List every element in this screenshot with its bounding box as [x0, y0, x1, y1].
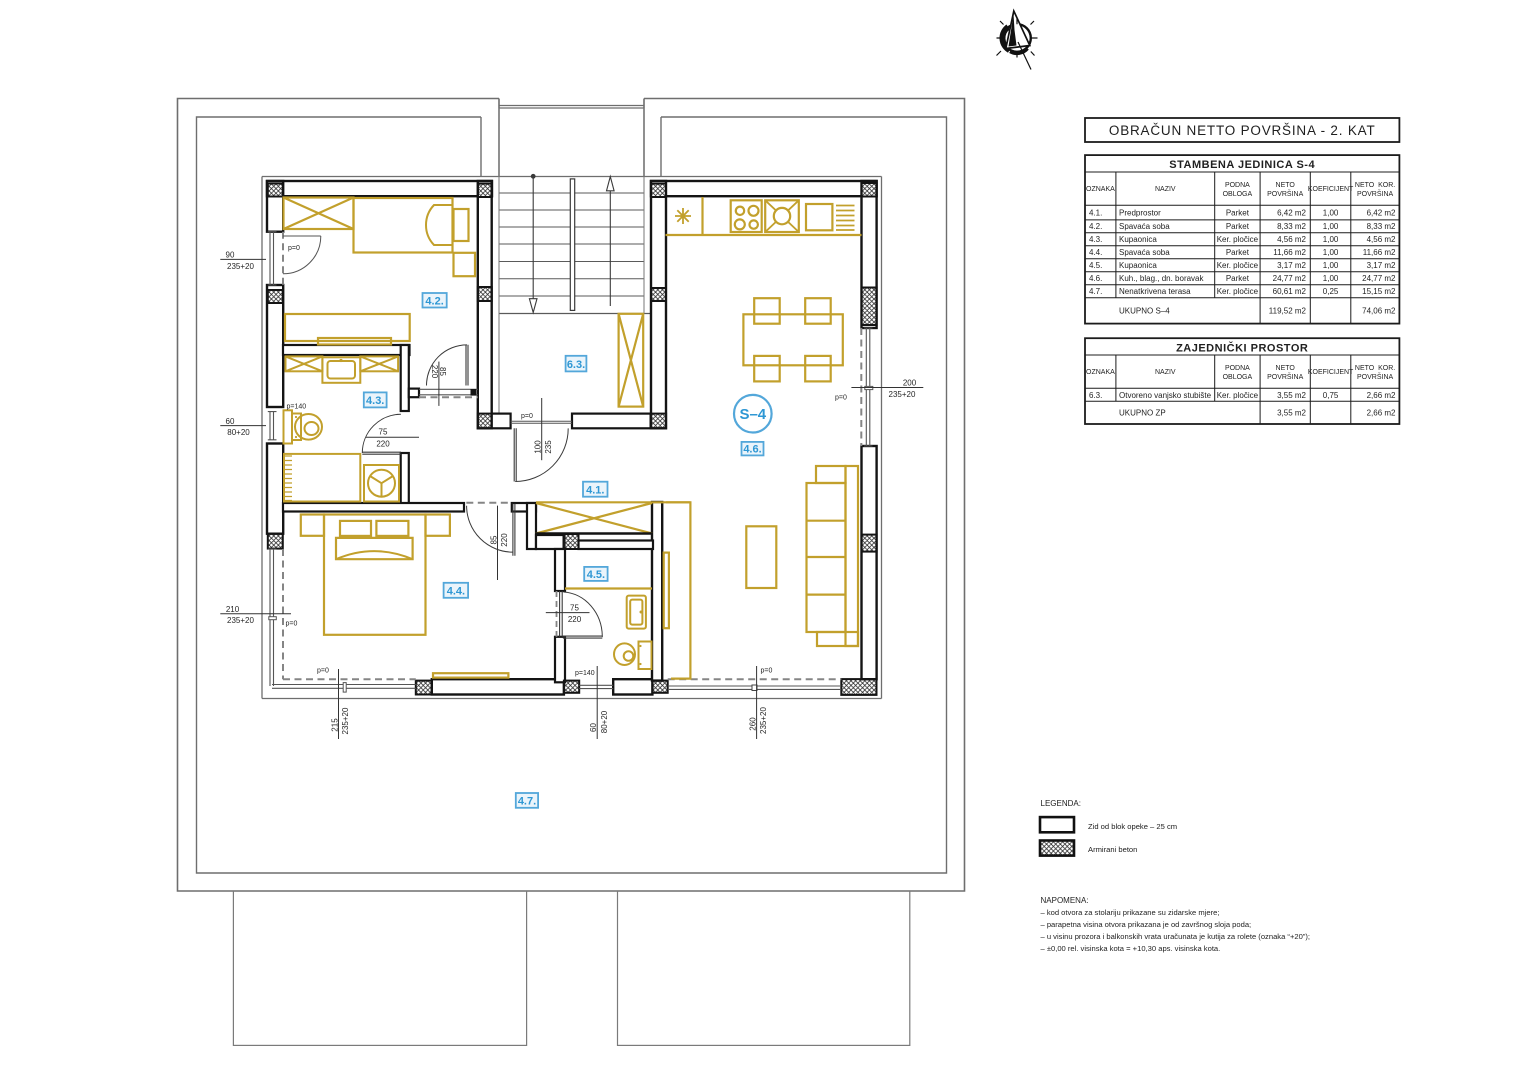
- svg-text:NAZIV: NAZIV: [1155, 369, 1176, 376]
- svg-text:OBLOGA: OBLOGA: [1223, 191, 1253, 198]
- svg-text:220: 220: [376, 439, 390, 448]
- svg-text:LEGENDA:: LEGENDA:: [1041, 799, 1081, 808]
- svg-text:p=0: p=0: [317, 667, 329, 674]
- svg-text:Ker. pločice: Ker. pločice: [1217, 391, 1259, 400]
- svg-text:p=140: p=140: [287, 404, 307, 411]
- svg-text:p=0: p=0: [286, 621, 298, 628]
- svg-text:NAPOMENA:: NAPOMENA:: [1041, 896, 1089, 905]
- svg-text:STAMBENA JEDINICA S-4: STAMBENA JEDINICA S-4: [1169, 159, 1315, 171]
- svg-text:Spavaća soba: Spavaća soba: [1119, 222, 1170, 231]
- svg-text:75: 75: [379, 427, 388, 436]
- svg-text:4.5.: 4.5.: [587, 569, 605, 581]
- svg-text:60,61 m2: 60,61 m2: [1273, 287, 1307, 296]
- svg-text:1,00: 1,00: [1323, 248, 1339, 257]
- svg-text:90: 90: [226, 251, 235, 260]
- svg-text:1,00: 1,00: [1323, 209, 1339, 218]
- svg-text:p=0: p=0: [288, 245, 300, 252]
- svg-text:p=0: p=0: [521, 413, 533, 420]
- svg-text:4.3.: 4.3.: [1089, 235, 1102, 244]
- svg-text:235+20: 235+20: [227, 262, 254, 271]
- svg-text:1,00: 1,00: [1323, 261, 1339, 270]
- svg-text:215: 215: [331, 718, 340, 732]
- svg-text:15,15 m2: 15,15 m2: [1362, 287, 1396, 296]
- svg-text:Armirani beton: Armirani beton: [1088, 845, 1137, 854]
- svg-text:260: 260: [749, 717, 758, 731]
- svg-text:8,33 m2: 8,33 m2: [1367, 222, 1396, 231]
- svg-text:1,00: 1,00: [1323, 274, 1339, 283]
- svg-text:85: 85: [490, 535, 499, 544]
- svg-text:Kuh., blag., dn. boravak: Kuh., blag., dn. boravak: [1119, 274, 1205, 283]
- svg-text:UKUPNO ZP: UKUPNO ZP: [1119, 409, 1166, 418]
- svg-text:Otvoreno vanjsko stubište: Otvoreno vanjsko stubište: [1119, 391, 1212, 400]
- svg-text:Spavaća soba: Spavaća soba: [1119, 248, 1170, 257]
- svg-text:60: 60: [589, 723, 598, 732]
- svg-text:6,42 m2: 6,42 m2: [1367, 209, 1396, 218]
- svg-text:3,17 m2: 3,17 m2: [1367, 261, 1396, 270]
- svg-text:NETO: NETO: [1276, 182, 1296, 189]
- svg-text:220: 220: [500, 533, 509, 547]
- svg-text:24,77 m2: 24,77 m2: [1273, 274, 1307, 283]
- svg-text:Ker. pločice: Ker. pločice: [1217, 235, 1259, 244]
- svg-text:4,56 m2: 4,56 m2: [1367, 235, 1396, 244]
- svg-text:OBRAČUN NETTO POVRŠINA - 2. KA: OBRAČUN NETTO POVRŠINA - 2. KAT: [1109, 123, 1376, 138]
- svg-text:235+20: 235+20: [759, 706, 768, 733]
- svg-text:– parapetna visina otvora prik: – parapetna visina otvora prikazana je o…: [1041, 920, 1252, 929]
- svg-text:4.2.: 4.2.: [425, 295, 443, 307]
- svg-text:KOEFICIJENT: KOEFICIJENT: [1308, 186, 1354, 193]
- svg-text:210: 210: [226, 605, 240, 614]
- svg-text:4,56 m2: 4,56 m2: [1277, 235, 1306, 244]
- svg-text:OZNAKA: OZNAKA: [1086, 186, 1115, 193]
- svg-text:6.3.: 6.3.: [1089, 391, 1102, 400]
- svg-text:4.2.: 4.2.: [1089, 222, 1102, 231]
- svg-text:3,55 m2: 3,55 m2: [1277, 391, 1306, 400]
- svg-text:Nenatkrivena terasa: Nenatkrivena terasa: [1119, 287, 1191, 296]
- svg-text:1,00: 1,00: [1323, 235, 1339, 244]
- svg-text:235+20: 235+20: [227, 616, 254, 625]
- svg-text:11,66 m2: 11,66 m2: [1273, 248, 1306, 257]
- svg-text:75: 75: [570, 604, 579, 613]
- svg-text:NETO: NETO: [1276, 365, 1296, 372]
- svg-text:– kod otvora za stolariju prik: – kod otvora za stolariju prikazane su z…: [1041, 908, 1220, 917]
- svg-text:4.7.: 4.7.: [518, 796, 536, 808]
- svg-text:Predprostor: Predprostor: [1119, 209, 1161, 218]
- svg-text:4.5.: 4.5.: [1089, 261, 1102, 270]
- svg-text:S–4: S–4: [739, 406, 766, 423]
- svg-text:4.6.: 4.6.: [1089, 274, 1102, 283]
- svg-text:Parket: Parket: [1226, 222, 1250, 231]
- svg-text:8,33 m2: 8,33 m2: [1277, 222, 1306, 231]
- svg-text:POVRŠINA: POVRŠINA: [1267, 189, 1304, 198]
- svg-text:0,75: 0,75: [1323, 391, 1339, 400]
- svg-text:OBLOGA: OBLOGA: [1223, 374, 1253, 381]
- svg-text:p=0: p=0: [761, 668, 773, 675]
- svg-text:NAZIV: NAZIV: [1155, 186, 1176, 193]
- svg-text:60: 60: [226, 417, 235, 426]
- svg-text:2,66 m2: 2,66 m2: [1367, 409, 1396, 418]
- svg-text:1,00: 1,00: [1323, 222, 1339, 231]
- svg-text:Parket: Parket: [1226, 248, 1250, 257]
- svg-text:3,55 m2: 3,55 m2: [1277, 409, 1306, 418]
- svg-text:0,25: 0,25: [1323, 287, 1339, 296]
- svg-text:100: 100: [534, 440, 543, 454]
- svg-text:KOEFICIJENT: KOEFICIJENT: [1308, 369, 1354, 376]
- svg-text:– ±0,00 rel. visinska kota = +: – ±0,00 rel. visinska kota = +10,30 aps.…: [1041, 944, 1221, 953]
- svg-text:p=140: p=140: [575, 670, 595, 677]
- svg-text:6,42 m2: 6,42 m2: [1277, 209, 1306, 218]
- svg-text:Ker. pločice: Ker. pločice: [1217, 287, 1259, 296]
- svg-text:POVRŠINA: POVRŠINA: [1357, 372, 1394, 381]
- svg-text:Parket: Parket: [1226, 274, 1250, 283]
- svg-text:4.3.: 4.3.: [366, 395, 384, 407]
- svg-text:UKUPNO S–4: UKUPNO S–4: [1119, 307, 1170, 316]
- svg-text:– u visinu prozora i balkonski: – u visinu prozora i balkonskih vrata ur…: [1041, 932, 1311, 941]
- svg-text:OZNAKA: OZNAKA: [1086, 369, 1115, 376]
- svg-text:80+20: 80+20: [227, 428, 250, 437]
- svg-text:NETO KOR.: NETO KOR.: [1355, 182, 1395, 189]
- svg-text:POVRŠINA: POVRŠINA: [1357, 189, 1394, 198]
- svg-text:2,66 m2: 2,66 m2: [1367, 391, 1396, 400]
- svg-text:ZAJEDNIČKI PROSTOR: ZAJEDNIČKI PROSTOR: [1176, 342, 1308, 355]
- svg-text:PODNA: PODNA: [1225, 182, 1250, 189]
- svg-text:24,77 m2: 24,77 m2: [1362, 274, 1396, 283]
- svg-text:4.1.: 4.1.: [586, 484, 604, 496]
- svg-text:220: 220: [568, 615, 582, 624]
- svg-text:Parket: Parket: [1226, 209, 1250, 218]
- svg-text:235+20: 235+20: [889, 390, 916, 399]
- svg-text:Kupaonica: Kupaonica: [1119, 235, 1157, 244]
- svg-text:74,06 m2: 74,06 m2: [1362, 307, 1396, 316]
- svg-text:4.4.: 4.4.: [1089, 248, 1102, 257]
- svg-text:POVRŠINA: POVRŠINA: [1267, 372, 1304, 381]
- svg-text:4.7.: 4.7.: [1089, 287, 1102, 296]
- svg-text:Zid od blok opeke – 25 cm: Zid od blok opeke – 25 cm: [1088, 822, 1177, 831]
- svg-text:4.1.: 4.1.: [1089, 209, 1102, 218]
- svg-text:NETO KOR.: NETO KOR.: [1355, 365, 1395, 372]
- svg-text:3,17 m2: 3,17 m2: [1277, 261, 1306, 270]
- svg-text:11,66 m2: 11,66 m2: [1363, 248, 1396, 257]
- svg-text:Kupaonica: Kupaonica: [1119, 261, 1157, 270]
- svg-text:119,52 m2: 119,52 m2: [1269, 307, 1307, 316]
- svg-text:80+20: 80+20: [600, 710, 609, 733]
- svg-text:220: 220: [430, 365, 439, 379]
- svg-text:p=0: p=0: [835, 394, 847, 401]
- svg-text:4.6.: 4.6.: [743, 444, 761, 456]
- svg-text:6.3.: 6.3.: [567, 359, 585, 371]
- svg-text:235+20: 235+20: [341, 707, 350, 734]
- svg-text:Ker. pločice: Ker. pločice: [1217, 261, 1259, 270]
- svg-text:PODNA: PODNA: [1225, 365, 1250, 372]
- svg-text:235: 235: [544, 440, 553, 454]
- svg-text:200: 200: [903, 379, 917, 388]
- svg-text:4.4.: 4.4.: [447, 585, 465, 597]
